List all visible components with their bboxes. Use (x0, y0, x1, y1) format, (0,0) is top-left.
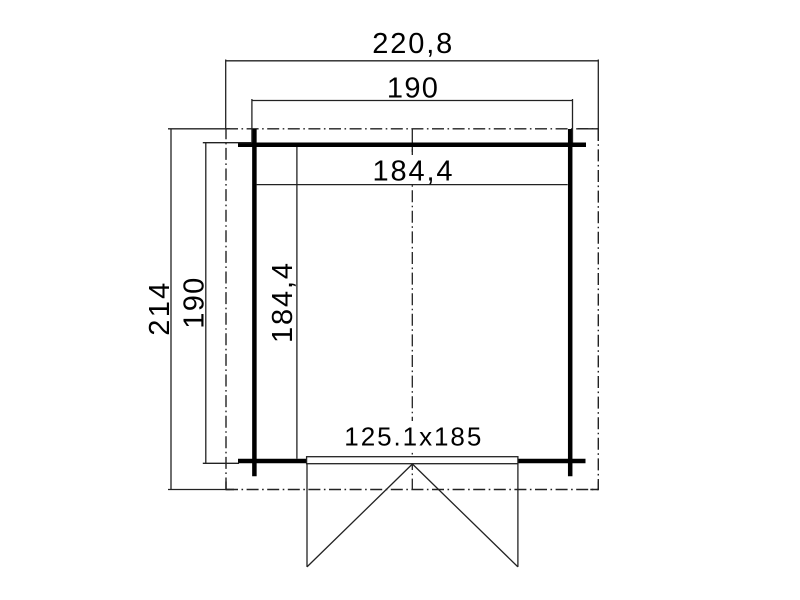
svg-text:220,8: 220,8 (372, 28, 452, 60)
svg-text:190: 190 (387, 73, 438, 105)
svg-text:184,4: 184,4 (267, 263, 299, 343)
svg-text:190: 190 (179, 278, 211, 329)
svg-text:214: 214 (144, 283, 176, 336)
svg-text:125.1x185: 125.1x185 (344, 422, 481, 452)
svg-text:184,4: 184,4 (373, 156, 453, 188)
